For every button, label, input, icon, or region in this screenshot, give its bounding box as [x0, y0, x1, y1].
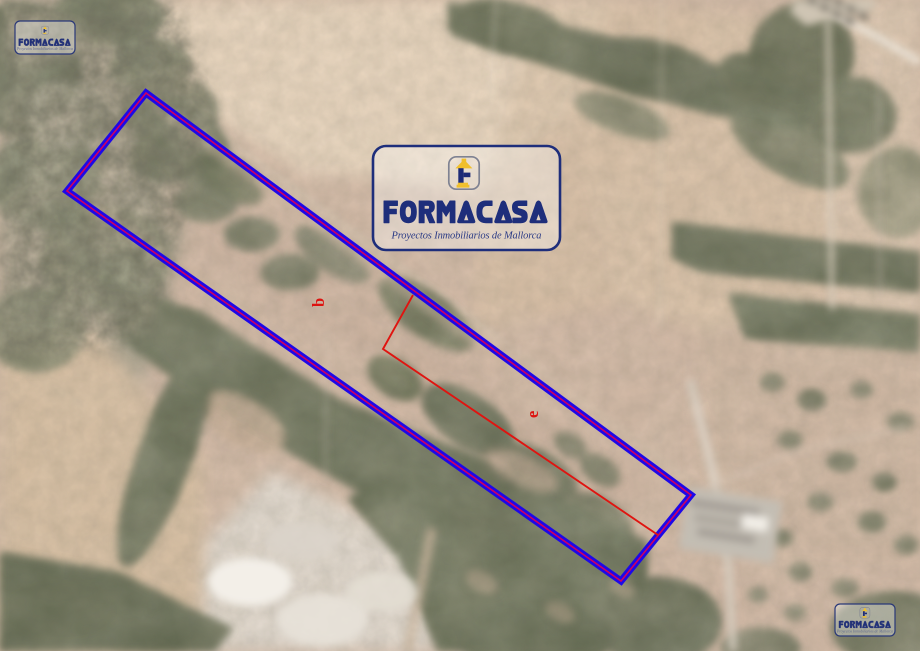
svg-text:b: b: [309, 298, 328, 307]
svg-text:e: e: [523, 411, 542, 418]
svg-text:Proyectos Inmobiliarios de Mal: Proyectos Inmobiliarios de Mallorca: [391, 231, 542, 242]
svg-text:Proyectos Inmobiliarios de Mal: Proyectos Inmobiliarios de Mallorca: [836, 630, 893, 634]
svg-text:Proyectos Inmobiliarios de Mal: Proyectos Inmobiliarios de Mallorca: [16, 47, 73, 51]
